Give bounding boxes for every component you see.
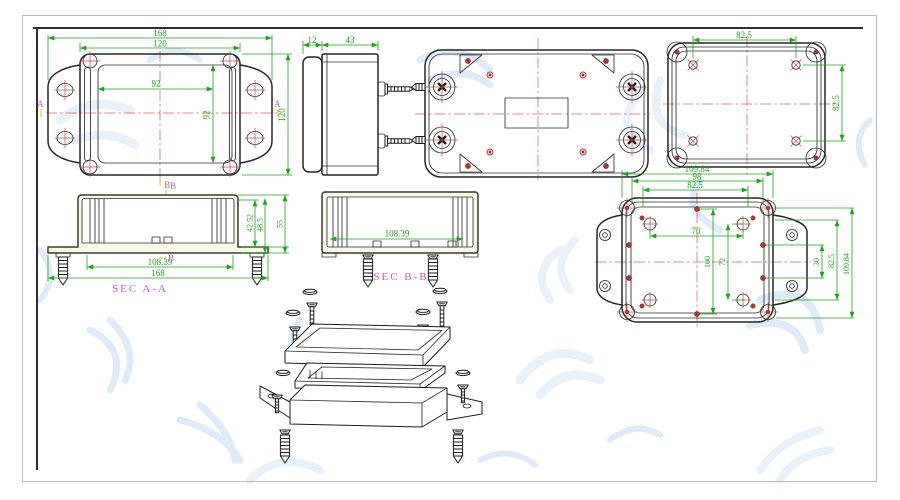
exploded-body xyxy=(260,385,482,427)
bottom-anchor-screws xyxy=(412,84,426,144)
secaa-label: SEC A-A xyxy=(112,283,168,295)
top-lid-screws xyxy=(688,60,802,147)
drawing-sheet: 168 120 92 92 120 A A B xyxy=(0,0,900,500)
top-view: 82.5 82.5 xyxy=(655,28,870,178)
dim-top-height: 82.5 xyxy=(831,95,841,111)
bottom-corner-tabs xyxy=(460,55,614,172)
frame-left-line xyxy=(36,27,38,470)
dim-secaa-inner-depth: 42.52 xyxy=(246,214,255,232)
side-dimensions: 12 43 xyxy=(303,35,378,54)
front-view: 168 120 92 92 120 A A B xyxy=(40,25,295,195)
top-outline xyxy=(668,43,825,167)
dim-front-lid-height: 92 xyxy=(202,111,212,120)
bottom-corner-bosses xyxy=(426,71,648,156)
exploded-wall-anchors xyxy=(280,430,463,463)
dim-back-inner-hole-height: 72 xyxy=(718,258,727,266)
top-corner-bosses xyxy=(667,42,826,168)
dim-back-inner-hole-width: 70 xyxy=(692,226,702,236)
side-view: 12 43 xyxy=(300,25,425,195)
dim-side-flange-depth: 12 xyxy=(308,35,317,45)
dim-front-body-width: 120 xyxy=(153,39,167,49)
section-marker-a-right: A xyxy=(274,99,281,109)
back-view: 109.84 98 82.5 70 100 72 30 xyxy=(595,165,860,330)
section-marker-a-left: A xyxy=(37,99,44,109)
back-flange-holes xyxy=(600,230,798,292)
dim-top-width: 82.5 xyxy=(736,30,752,40)
top-centerlines xyxy=(663,36,835,174)
dim-back-lid-height: 82.5 xyxy=(827,254,836,268)
back-outline xyxy=(597,198,807,322)
bottom-label-recess xyxy=(505,98,568,128)
dim-secaa-total-height: 55 xyxy=(276,220,285,228)
bottom-outline xyxy=(425,50,648,177)
section-marker-b-top: B xyxy=(170,181,176,191)
back-dimensions: 109.84 98 82.5 70 100 72 30 xyxy=(622,164,854,318)
dim-side-body-depth: 43 xyxy=(346,35,356,45)
side-outline xyxy=(303,54,385,175)
dim-secbb-inner-width: 108.39 xyxy=(385,229,410,239)
exploded-view xyxy=(248,278,488,490)
dim-back-inner-height-outer: 100 xyxy=(703,256,712,268)
bottom-pilot-holes xyxy=(487,72,586,155)
front-centerlines xyxy=(46,51,278,177)
secbb-profile xyxy=(322,192,478,257)
secaa-profile xyxy=(48,195,268,257)
dim-back-total-height: 109.84 xyxy=(842,253,851,275)
dim-front-lid-width: 92 xyxy=(152,79,161,89)
bottom-centerlines xyxy=(415,38,650,180)
dim-back-right-small: 30 xyxy=(812,258,821,266)
dim-front-outer-width: 168 xyxy=(153,28,167,38)
exploded-lid xyxy=(285,324,450,367)
section-marker-b-bottom2: B xyxy=(168,253,174,263)
dim-secaa-total-width: 168 xyxy=(151,268,165,278)
dim-back-lid-width: 82.5 xyxy=(687,180,703,190)
dim-secaa-mid-depth: 48.5 xyxy=(256,218,265,232)
bottom-view xyxy=(410,30,655,185)
